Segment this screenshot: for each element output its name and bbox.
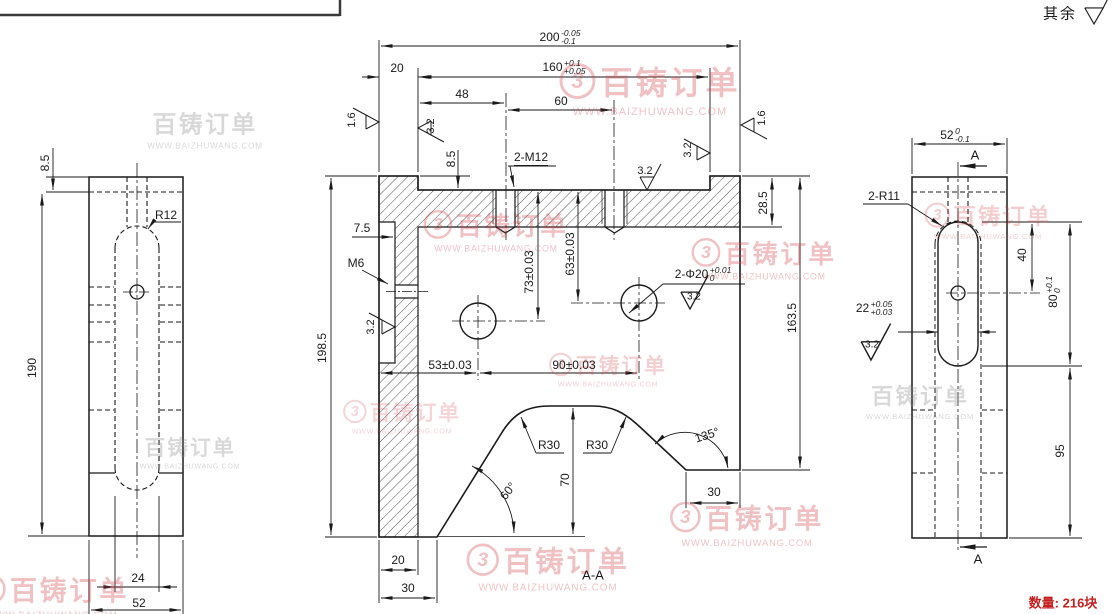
- general-roughness-note: 其余: [1043, 3, 1077, 24]
- default-finish-icon: [1085, 0, 1108, 24]
- finish-3-2-c: 3.2: [682, 142, 694, 157]
- dim-30-right: 30: [707, 485, 720, 499]
- dim-8-5-left-view: 8.5: [38, 155, 52, 172]
- dim-73: 73±0.03: [522, 250, 536, 293]
- dim-90: 90±0.03: [552, 358, 595, 372]
- finish-3-2-a: 3.2: [425, 118, 437, 133]
- dim-198-5: 198.5: [315, 333, 329, 363]
- section-marker-a-bottom: A: [974, 552, 983, 567]
- dim-48: 48: [455, 87, 468, 101]
- dim-30-bottom: 30: [401, 581, 414, 595]
- section-aa-label: A-A: [582, 568, 604, 583]
- finish-3-2-left-col: 3.2: [365, 319, 377, 334]
- radius-r30-left-label: R30: [538, 438, 560, 452]
- dim-20-top: 20: [390, 61, 403, 75]
- dim-52-right-view: 520-0.1: [940, 127, 970, 143]
- dim-40: 40: [1015, 248, 1029, 261]
- dim-163-5: 163.5: [785, 303, 799, 333]
- dim-20-bottom: 20: [391, 553, 404, 567]
- dim-2-phi20: 2-Φ20+0.010: [675, 266, 732, 282]
- finish-1-6-right: 1.6: [756, 110, 768, 125]
- finish-3-2-hole: 3.2: [687, 292, 701, 303]
- dim-80: 80+0.10: [1045, 276, 1061, 308]
- main-view: [325, 40, 810, 603]
- quantity-note: 数量: 216块: [1029, 593, 1098, 612]
- dim-8-5-main: 8.5: [444, 151, 458, 168]
- dim-95: 95: [1053, 444, 1067, 457]
- dim-70: 70: [558, 473, 572, 486]
- finish-1-6-left: 1.6: [346, 112, 358, 127]
- dim-7-5: 7.5: [354, 221, 371, 235]
- drawing-canvas: [0, 0, 1113, 614]
- radius-r30-right-label: R30: [586, 438, 608, 452]
- finish-3-2-right-view: 3.2: [865, 340, 879, 351]
- dim-200: 200-0.05-0.1: [540, 29, 581, 45]
- dim-60: 60: [554, 94, 567, 108]
- dim-22: 22+0.05+0.03: [856, 300, 892, 316]
- finish-3-2-b: 3.2: [637, 165, 652, 177]
- dim-160: 160+0.1+0.05: [542, 59, 585, 75]
- drawing-sheet: 3百铸订单 WWW.BAIZHUWANG.COM 3百铸订单 WWW.BAIZH…: [0, 0, 1113, 614]
- thread-m6-label: M6: [348, 256, 365, 270]
- dim-52-left-view: 52: [132, 596, 145, 610]
- dim-53: 53±0.03: [428, 358, 471, 372]
- section-marker-a-top: A: [971, 148, 980, 163]
- radius-r12-label: R12: [155, 208, 177, 222]
- dim-28-5: 28.5: [756, 191, 770, 214]
- dim-63: 63±0.03: [563, 232, 577, 275]
- dim-24: 24: [131, 571, 144, 585]
- frame-corner: [0, 0, 340, 16]
- radius-2r11-label: 2-R11: [868, 189, 900, 203]
- dim-190: 190: [25, 358, 39, 378]
- hidden-lines: [89, 287, 183, 410]
- thread-2m12-label: 2-M12: [514, 150, 548, 166]
